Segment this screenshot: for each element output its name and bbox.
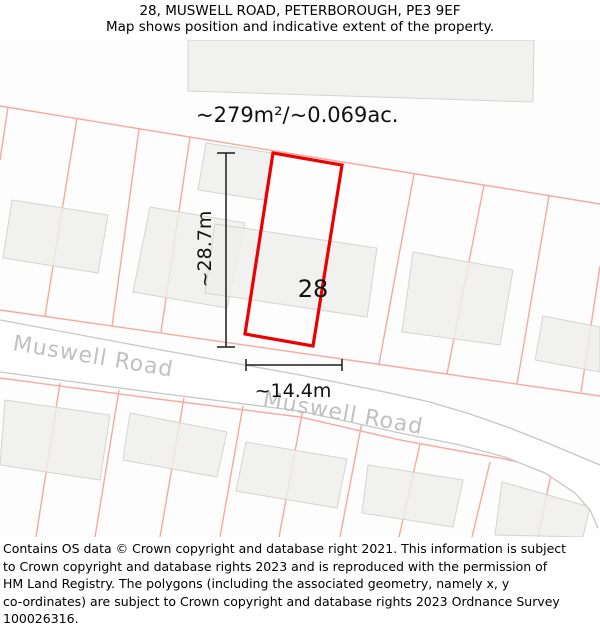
copyright-line: 100026316.: [3, 610, 597, 625]
parcel-divider: [472, 462, 490, 537]
building-on-plot: [205, 224, 377, 317]
copyright-line: to Crown copyright and database rights 2…: [3, 558, 597, 576]
building-top-large: [188, 40, 534, 102]
building: [123, 413, 227, 477]
copyright-line: Contains OS data © Crown copyright and d…: [3, 540, 597, 558]
plot-number-label: 28: [298, 275, 329, 303]
building: [236, 442, 347, 508]
copyright-line: HM Land Registry. The polygons (includin…: [3, 575, 597, 593]
building: [3, 200, 108, 273]
building: [0, 400, 110, 480]
height-dimension-label: ~28.7m: [194, 211, 216, 288]
building: [198, 143, 272, 200]
area-label: ~279m²/~0.069ac.: [196, 103, 398, 127]
parcel-divider: [379, 174, 414, 364]
property-map: Muswell Road Muswell Road ~279m²/~0.069a…: [0, 40, 600, 537]
copyright-line: co-ordinates) are subject to Crown copyr…: [3, 593, 597, 611]
report-header: 28, MUSWELL ROAD, PETERBOROUGH, PE3 9EF …: [0, 0, 600, 40]
building: [362, 465, 463, 527]
width-dimension-label: ~14.4m: [255, 380, 332, 402]
page-title: 28, MUSWELL ROAD, PETERBOROUGH, PE3 9EF: [0, 3, 600, 19]
copyright-notice: Contains OS data © Crown copyright and d…: [0, 537, 600, 625]
page-subtitle: Map shows position and indicative extent…: [0, 19, 600, 35]
building: [402, 252, 513, 345]
parcel-divider: [112, 129, 139, 327]
building: [535, 316, 600, 372]
parcel-divider: [0, 107, 8, 160]
